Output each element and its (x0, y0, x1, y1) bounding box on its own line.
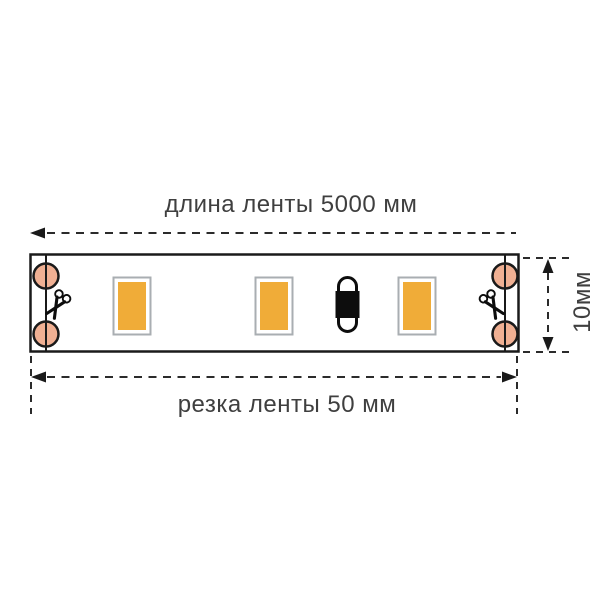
up-arrow-icon (543, 259, 554, 273)
left-arrow-icon (30, 228, 45, 239)
length-dimension-line (30, 228, 516, 239)
led-strip-diagram: длина ленты 5000 мм резка ленты 50 мм 10… (0, 0, 616, 616)
width-dimension-line (523, 258, 569, 352)
led-chip-icon (399, 278, 436, 335)
diagram-graphics (0, 0, 616, 616)
led-chip-icon (114, 278, 151, 335)
resistor-icon (336, 278, 360, 332)
left-arrow-icon (31, 372, 46, 383)
strip-width-label: 10мм (569, 262, 595, 342)
right-arrow-icon (502, 372, 517, 383)
cut-interval-label: резка ленты 50 мм (87, 391, 487, 419)
down-arrow-icon (543, 337, 554, 351)
tape-length-label: длина ленты 5000 мм (91, 191, 491, 219)
led-chip-icon (256, 278, 293, 335)
